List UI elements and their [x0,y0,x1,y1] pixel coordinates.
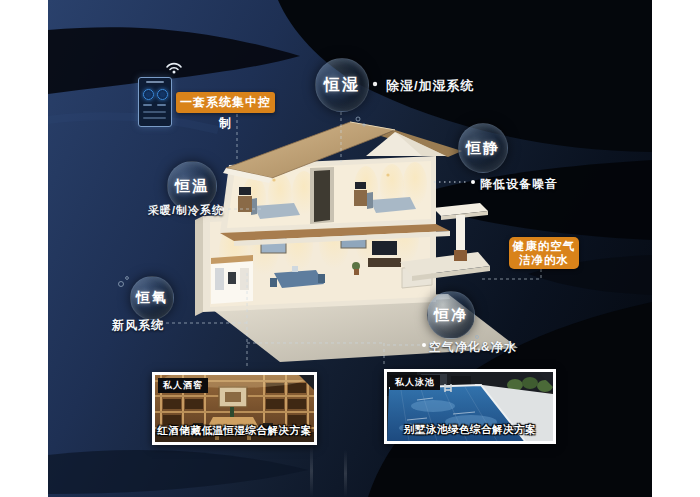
photo-wine-cellar: 私人酒窖 红酒储藏低温恒湿综合解决方案 [152,372,317,445]
bubble-label: 恒净 [434,306,468,325]
light-streak [310,445,313,497]
infographic-canvas: 一套系统集中控制 恒湿 除湿/加湿系统 恒静 降低设备噪音 恒温 采暖/制冷系统… [48,0,652,497]
highlight-line1: 健康的空气 [509,239,579,253]
label-air-water-purification: 空气净化&净水 [429,339,517,356]
bubble-constant-oxygen: 恒氧 [130,276,174,320]
wifi-icon [164,58,184,74]
bubble-constant-humidity: 恒湿 [315,58,369,112]
phone-row [143,117,166,119]
phone-dial-left [143,89,154,100]
bubble-label: 恒氧 [136,289,168,307]
bubble-constant-clean: 恒净 [427,291,475,339]
photo-corner-ribbon [538,372,553,387]
photo-tag: 私人酒窖 [158,378,208,393]
label-fresh-air-system: 新风系统 [112,317,164,334]
photo-tag: 私人泳池 [390,375,440,390]
photo-caption: 别墅泳池绿色综合解决方案 [387,423,553,437]
label-noise-reduction: 降低设备噪音 [480,176,558,193]
phone-status-bar [146,81,164,83]
healthy-air-water-box: 健康的空气 洁净的水 [509,237,579,269]
phone-label-strip [143,104,152,106]
phone-label-strip [157,104,166,106]
photo-caption: 红酒储藏低温恒湿综合解决方案 [155,424,314,438]
smart-control-phone [138,77,172,127]
bubble-label: 恒静 [466,139,500,158]
bubble-label: 恒湿 [324,75,360,96]
bubble-constant-quiet: 恒静 [458,123,508,173]
smart-home-infographic: 一套系统集中控制 恒湿 除湿/加湿系统 恒静 降低设备噪音 恒温 采暖/制冷系统… [0,0,700,497]
highlight-line2: 洁净的水 [509,253,579,267]
light-streak [344,450,347,497]
photo-swimming-pool: 私人泳池 别墅泳池绿色综合解决方案 [384,369,556,444]
label-humidity-system: 除湿/加湿系统 [386,77,475,95]
central-control-label: 一套系统集中控制 [176,92,275,113]
bubble-label: 恒温 [175,177,209,196]
label-heating-cooling-system: 采暖/制冷系统 [148,203,224,218]
phone-dial-right [157,89,168,100]
phone-row [143,111,166,113]
photo-corner-ribbon [299,375,314,390]
